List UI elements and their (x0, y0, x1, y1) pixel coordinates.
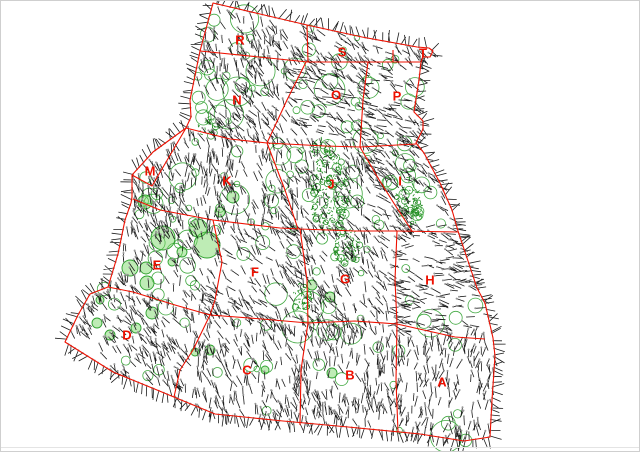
region-label-G: G (340, 272, 350, 287)
inner-boundary-5 (186, 128, 416, 147)
canopy-circle (269, 144, 290, 165)
region-label-J: J (327, 177, 334, 192)
canopy-circle (317, 233, 328, 244)
region-label-R: R (235, 33, 245, 48)
dense-stand-circle (324, 205, 327, 208)
canopy-circle (401, 94, 416, 109)
canopy-filled-circle (146, 307, 158, 319)
region-label-D: D (122, 328, 131, 343)
canopy-circle (180, 318, 189, 327)
canopy-circle (468, 298, 483, 313)
region-label-F: F (251, 265, 259, 280)
canopy-filled-circle (140, 276, 154, 290)
canopy-circle (358, 270, 364, 276)
canopy-circle (213, 368, 223, 378)
dense-stand-circle (299, 290, 303, 294)
canopy-filled-layer (92, 191, 337, 378)
region-label-T: T (419, 46, 427, 61)
map-viewport: RSTNOPMKJIEFGHDCBA (0, 0, 640, 452)
canopy-filled-circle (307, 280, 317, 290)
canopy-circle (372, 216, 380, 224)
canopy-filled-circle (92, 318, 102, 328)
canopy-circle (301, 101, 315, 115)
canopy-circle (313, 268, 320, 275)
dense-stand-circle (338, 159, 344, 165)
parcel-border-layer (65, 3, 495, 441)
inner-boundary-3 (267, 62, 306, 143)
canopy-circle (293, 107, 300, 114)
tree-tick-dots (66, 4, 495, 441)
region-label-K: K (222, 174, 232, 189)
region-label-O: O (331, 88, 341, 103)
region-label-I: I (398, 174, 402, 189)
region-label-A: A (437, 375, 447, 390)
region-label-H: H (425, 273, 434, 288)
outer-boundary (65, 3, 495, 441)
canopy-filled-circle (261, 366, 269, 374)
canopy-circle (414, 177, 430, 193)
region-label-M: M (145, 164, 156, 179)
region-label-S: S (338, 45, 347, 60)
region-label-P: P (393, 89, 402, 104)
region-label-B: B (345, 368, 354, 383)
canopy-filled-circle (131, 323, 141, 333)
canopy-circle (287, 147, 303, 163)
forest-stand-map[interactable]: RSTNOPMKJIEFGHDCBA (0, 0, 640, 452)
region-label-C: C (242, 363, 252, 378)
region-label-E: E (153, 258, 162, 273)
canopy-circle (449, 311, 462, 324)
canopy-filled-circle (151, 226, 175, 250)
region-label-N: N (232, 93, 241, 108)
canopy-circle (302, 43, 315, 56)
canopy-circle (121, 356, 130, 365)
